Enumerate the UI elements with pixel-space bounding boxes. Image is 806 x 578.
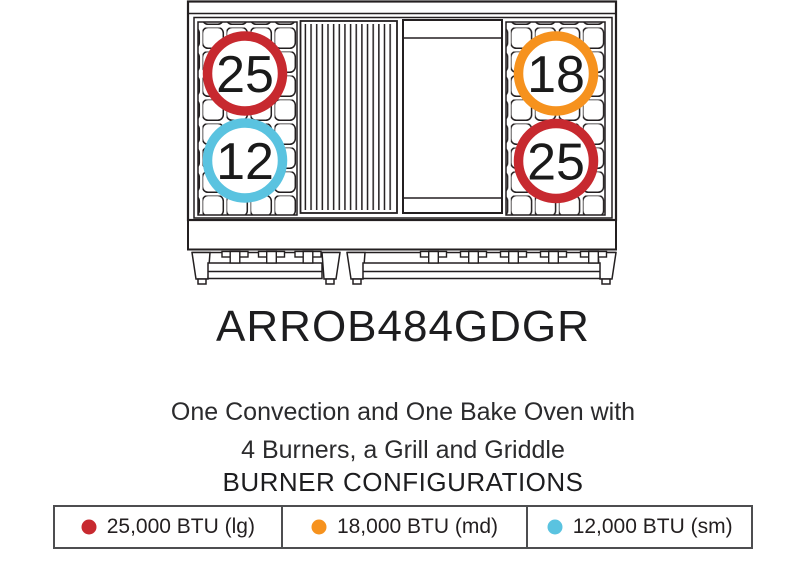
burner-legend-table: 25,000 BTU (lg) 18,000 BTU (md) 12,000 B… xyxy=(53,505,753,549)
legend-item-medium-burner: 18,000 BTU (md) xyxy=(281,507,527,547)
burner-value-right-bottom: 25 xyxy=(527,134,585,192)
burner-badge-right-bottom: 25 xyxy=(519,124,594,199)
legend-item-small-burner: 12,000 BTU (sm) xyxy=(526,507,751,547)
range-top-diagram: 25 12 18 25 xyxy=(0,0,806,292)
legend-item-large-burner: 25,000 BTU (lg) xyxy=(55,507,281,547)
control-band xyxy=(188,220,616,250)
burner-badge-right-top: 18 xyxy=(519,36,594,111)
description-line-1: One Convection and One Bake Oven with xyxy=(0,393,806,431)
legend-dot-large xyxy=(81,519,97,535)
range-spec-sheet: 25 12 18 25 ARROB484GDGR One Convection … xyxy=(0,0,806,578)
oven-door-right xyxy=(347,252,616,285)
burner-configurations-heading: BURNER CONFIGURATIONS xyxy=(0,467,806,498)
oven-door-left xyxy=(192,252,340,285)
description-line-2: 4 Burners, a Grill and Griddle xyxy=(0,431,806,469)
legend-label-small: 12,000 BTU (sm) xyxy=(573,515,733,539)
burner-value-right-top: 18 xyxy=(527,46,585,104)
legend-dot-medium xyxy=(311,519,327,535)
burner-badge-left-top: 25 xyxy=(208,36,283,111)
grill-section xyxy=(301,21,398,213)
burner-badge-left-bottom: 12 xyxy=(208,123,283,198)
griddle-section xyxy=(403,20,502,213)
burner-value-left-bottom: 12 xyxy=(216,133,274,191)
model-description: One Convection and One Bake Oven with 4 … xyxy=(0,393,806,469)
legend-label-medium: 18,000 BTU (md) xyxy=(337,515,498,539)
burner-value-left-top: 25 xyxy=(216,46,274,104)
model-number: ARROB484GDGR xyxy=(0,303,806,351)
legend-dot-small xyxy=(547,519,563,535)
legend-label-large: 25,000 BTU (lg) xyxy=(107,515,255,539)
